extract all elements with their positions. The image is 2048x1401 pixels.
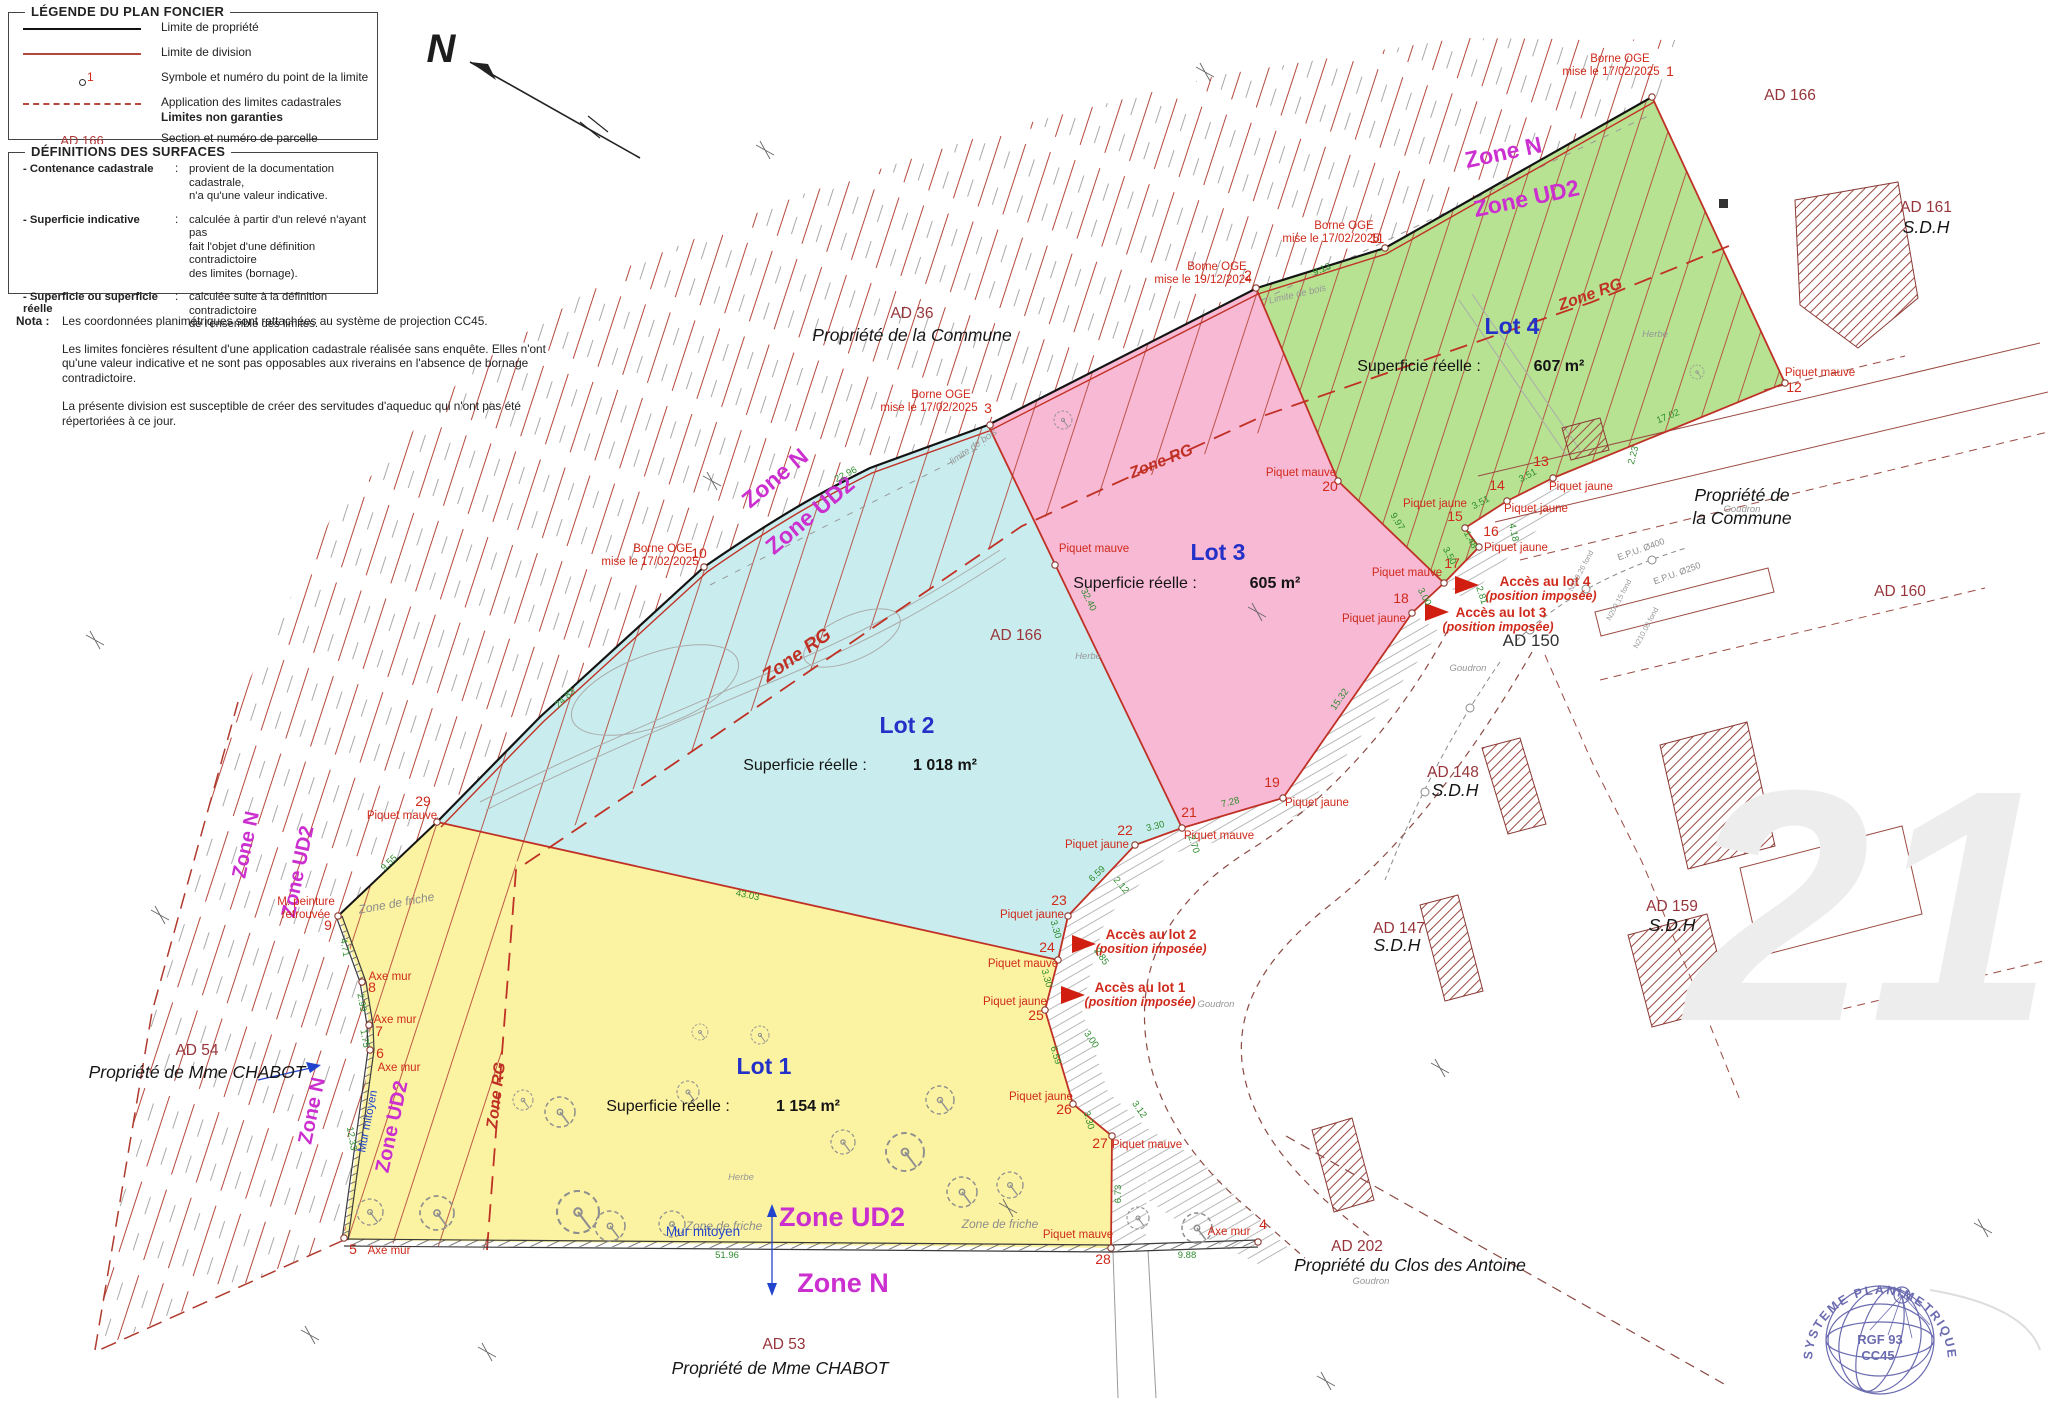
map-label: Lot 4	[1485, 313, 1540, 339]
map-label: Goudron	[1724, 504, 1761, 515]
map-label: 10	[691, 545, 707, 561]
map-label: 22	[1117, 822, 1133, 838]
globe-stamp-icon: SYSTEME PLANIMETRIQUE RGF 93 CC45	[1801, 1278, 2040, 1401]
map-label: 9.88	[1178, 1250, 1197, 1261]
nota-label: Nota :	[16, 314, 62, 441]
map-label: E.P.U. Ø400	[1616, 536, 1666, 562]
map-label: Propriété de Mme CHABOT	[672, 1358, 890, 1378]
survey-point	[335, 913, 341, 919]
map-label: 20	[1322, 478, 1338, 494]
map-label: Lot 1	[737, 1053, 792, 1079]
map-label: 4	[1259, 1216, 1267, 1232]
map-label: Piquet mauve	[1112, 1139, 1182, 1151]
definitions-title: DÉFINITIONS DES SURFACES	[25, 144, 231, 159]
nota-paragraph: Les limites foncières résultent d'une ap…	[62, 342, 561, 386]
map-label: AD 161	[1900, 199, 1952, 216]
map-label: S.D.H	[1432, 780, 1479, 800]
map-label: Borne OGE	[1590, 53, 1650, 65]
legend-row: Limite de division	[23, 45, 369, 63]
plan-sheet: 21NZone NZone UD2Zone NZone UD2Zone NZon…	[0, 0, 2048, 1401]
survey-point	[1253, 285, 1259, 291]
map-label: Superficie réelle :	[606, 1098, 730, 1115]
map-label: Accès au lot 3	[1456, 605, 1547, 620]
map-label: 6	[376, 1045, 384, 1061]
map-label: retrouvée	[282, 909, 331, 921]
map-label: E.P.U. Ø250	[1652, 560, 1702, 586]
map-label: Borne OGE	[911, 389, 971, 401]
map-label: AD 202	[1331, 1238, 1383, 1255]
map-label: 18	[1393, 590, 1409, 606]
map-label: Axe mur	[378, 1062, 421, 1074]
map-label: Propriété du Clos des Antoine	[1294, 1255, 1526, 1275]
map-label: 8	[368, 979, 376, 995]
legend-symbol	[23, 95, 161, 113]
survey-point	[701, 564, 707, 570]
nota-paragraph: La présente division est susceptible de …	[62, 399, 561, 428]
map-label: Accès au lot 1	[1095, 980, 1186, 995]
map-label: 1 018 m²	[913, 757, 977, 774]
map-label: Superficie réelle :	[1073, 575, 1197, 592]
map-label: AD 54	[175, 1042, 218, 1059]
survey-point	[1409, 610, 1415, 616]
legend-symbol	[23, 45, 161, 63]
survey-cross-icon	[86, 631, 104, 649]
map-label: 1	[1666, 63, 1674, 79]
map-label: mise le 17/02/2025	[1282, 233, 1379, 245]
map-label: Propriété de Mme CHABOT	[89, 1062, 307, 1082]
nota-paragraph: Les coordonnées planimétriques sont ratt…	[62, 314, 561, 329]
definitions-box: DÉFINITIONS DES SURFACES - Contenance ca…	[8, 152, 378, 294]
map-label: S.D.H	[1649, 915, 1696, 935]
nota-block: Nota : Les coordonnées planimétriques so…	[16, 314, 561, 441]
survey-point	[341, 1235, 347, 1241]
definition-row: - Superficie indicative : calculée à par…	[23, 214, 369, 282]
map-label: 21	[1681, 721, 2048, 1090]
map-label: 24	[1039, 939, 1055, 955]
survey-point	[359, 979, 365, 985]
map-label: Borne OGE	[1314, 220, 1374, 232]
map-label: S.D.H	[1374, 935, 1421, 955]
map-label: mise le 17/02/2025	[601, 556, 698, 568]
map-label: 28	[1095, 1251, 1111, 1267]
definition-description: calculée à partir d'un relevé n'ayant pa…	[189, 214, 369, 282]
map-label: 1 154 m²	[776, 1098, 840, 1115]
stamp-line1: RGF 93	[1857, 1332, 1903, 1347]
map-label: AD 166	[990, 627, 1042, 644]
map-label: 15	[1447, 508, 1463, 524]
map-label: AD 36	[890, 305, 933, 322]
legend-title: LÉGENDE DU PLAN FONCIER	[25, 4, 230, 19]
map-label: Piquet mauve	[1059, 543, 1129, 555]
survey-cross-icon	[478, 1343, 496, 1361]
map-label: AD 159	[1646, 898, 1698, 915]
map-label: 16	[1483, 523, 1499, 539]
map-label: AD 160	[1874, 583, 1926, 600]
map-label: Piquet mauve	[1043, 1229, 1113, 1241]
map-label: Propriété de la Commune	[812, 325, 1012, 345]
map-label: 5	[349, 1241, 357, 1257]
legend-symbol: 1	[23, 70, 161, 88]
map-label: 7	[375, 1023, 383, 1039]
map-label: Axe mur	[368, 1245, 411, 1257]
map-label: Piquet jaune	[1504, 503, 1568, 515]
survey-cross-icon	[1974, 1219, 1992, 1237]
map-label: AD 166	[1764, 87, 1816, 104]
map-label: Axe mur	[1208, 1226, 1251, 1238]
access-triangle-icon	[1425, 603, 1449, 621]
legend-label: Application des limites cadastralesLimit…	[161, 95, 341, 124]
map-label: AD 53	[762, 1336, 805, 1353]
nota-paragraphs: Les coordonnées planimétriques sont ratt…	[62, 314, 561, 441]
definition-row: - Contenance cadastrale : provient de la…	[23, 163, 369, 204]
map-label: M. peinture	[277, 896, 335, 908]
map-label: Goudron	[1450, 663, 1487, 674]
legend-items: Limite de propriété Limite de division 1…	[9, 20, 377, 149]
survey-point	[1065, 913, 1071, 919]
map-label: Zone de friche	[961, 1217, 1039, 1231]
map-label: N	[427, 27, 457, 71]
survey-cross-icon	[756, 141, 774, 159]
map-label: Propriété de	[1694, 485, 1790, 505]
survey-cross-icon	[151, 906, 169, 924]
map-label: Piquet mauve	[1785, 367, 1855, 379]
map-label: Piquet jaune	[1484, 542, 1548, 554]
map-label: 26	[1056, 1101, 1072, 1117]
map-label: AD 150	[1503, 631, 1560, 650]
map-label: Zone UD2	[779, 1202, 905, 1232]
map-label: Lot 3	[1191, 539, 1246, 565]
map-label: mise le 17/02/2025	[1562, 66, 1659, 78]
map-label: 11	[1370, 230, 1385, 246]
map-label: N210.00 fond	[1631, 606, 1660, 650]
map-label: 14	[1489, 477, 1505, 493]
map-label: 9	[324, 917, 332, 933]
map-label: Lot 2	[880, 712, 935, 738]
map-label: Borne OGE	[633, 543, 693, 555]
map-label: mise le 19/12/2024	[1154, 274, 1252, 286]
survey-point	[1132, 842, 1138, 848]
map-label: Herbe	[1642, 329, 1668, 340]
map-label: Superficie réelle :	[1357, 358, 1481, 375]
north-arrow	[470, 62, 640, 158]
legend-row: 1 Symbole et numéro du point de la limit…	[23, 70, 369, 88]
map-label: (position imposée)	[1485, 589, 1596, 603]
legend-label: Limite de propriété	[161, 20, 259, 35]
definition-term: - Contenance cadastrale	[23, 163, 175, 204]
map-label: Zone N	[797, 1268, 889, 1298]
map-label: Superficie réelle :	[743, 757, 867, 774]
map-label: 27	[1092, 1135, 1108, 1151]
survey-point	[366, 1022, 372, 1028]
map-label: 2.81	[1473, 585, 1489, 606]
survey-point	[1255, 1239, 1261, 1245]
legend-label: Symbole et numéro du point de la limite	[161, 70, 368, 85]
map-label: Herbe	[728, 1172, 754, 1183]
map-label: 21	[1181, 804, 1197, 820]
map-label: Herbe	[1075, 651, 1101, 662]
legend-symbol	[23, 20, 161, 38]
legend-box: LÉGENDE DU PLAN FONCIER Limite de propri…	[8, 12, 378, 140]
map-label: 3	[984, 400, 992, 416]
survey-point	[367, 1047, 373, 1053]
map-label: 25	[1028, 1007, 1044, 1023]
map-label: 29	[415, 793, 431, 809]
map-label: Mur mitoyen	[666, 1224, 740, 1239]
map-label: (position imposée)	[1095, 942, 1206, 956]
map-label: Piquet jaune	[1065, 839, 1129, 851]
map-label: Piquet mauve	[1372, 567, 1442, 579]
survey-point	[1052, 562, 1058, 568]
map-label: N209.15 fond	[1604, 578, 1633, 622]
map-label: Piquet mauve	[367, 810, 437, 822]
survey-point	[1649, 94, 1655, 100]
map-label: Goudron	[1353, 1276, 1390, 1287]
map-label: mise le 17/02/2025	[880, 402, 977, 414]
map-label: 2	[1244, 267, 1252, 283]
definition-description: provient de la documentation cadastrale,…	[189, 163, 369, 204]
survey-cross-icon	[1431, 1059, 1449, 1077]
map-label: AD 148	[1427, 764, 1479, 781]
map-label: Piquet jaune	[1285, 797, 1349, 809]
map-label: 607 m²	[1534, 358, 1585, 375]
map-label: 605 m²	[1250, 575, 1301, 592]
map-label: Borne OGE	[1187, 261, 1247, 273]
definition-term: - Superficie indicative	[23, 214, 175, 282]
map-label: Piquet jaune	[1342, 613, 1406, 625]
survey-cross-icon	[301, 1326, 319, 1344]
map-label: 13	[1533, 453, 1549, 469]
map-label: (position imposée)	[1084, 995, 1195, 1009]
definitions-items: - Contenance cadastrale : provient de la…	[9, 163, 377, 332]
map-label: Piquet jaune	[1549, 481, 1613, 493]
survey-point	[1441, 580, 1447, 586]
map-label: S.D.H	[1903, 217, 1950, 237]
legend-row: Limite de propriété	[23, 20, 369, 38]
legend-label: Limite de division	[161, 45, 252, 60]
map-label: 19	[1264, 774, 1280, 790]
map-label: 23	[1051, 892, 1067, 908]
map-label: Goudron	[1198, 999, 1235, 1010]
map-label: 51.96	[715, 1250, 739, 1261]
legend-row: Application des limites cadastralesLimit…	[23, 95, 369, 124]
map-label: Accès au lot 2	[1106, 927, 1197, 942]
map-label: 12	[1786, 379, 1802, 395]
stamp-line2: CC45	[1861, 1348, 1894, 1363]
map-label: 6.73	[1113, 1185, 1124, 1204]
survey-cross-icon	[1317, 1372, 1335, 1390]
